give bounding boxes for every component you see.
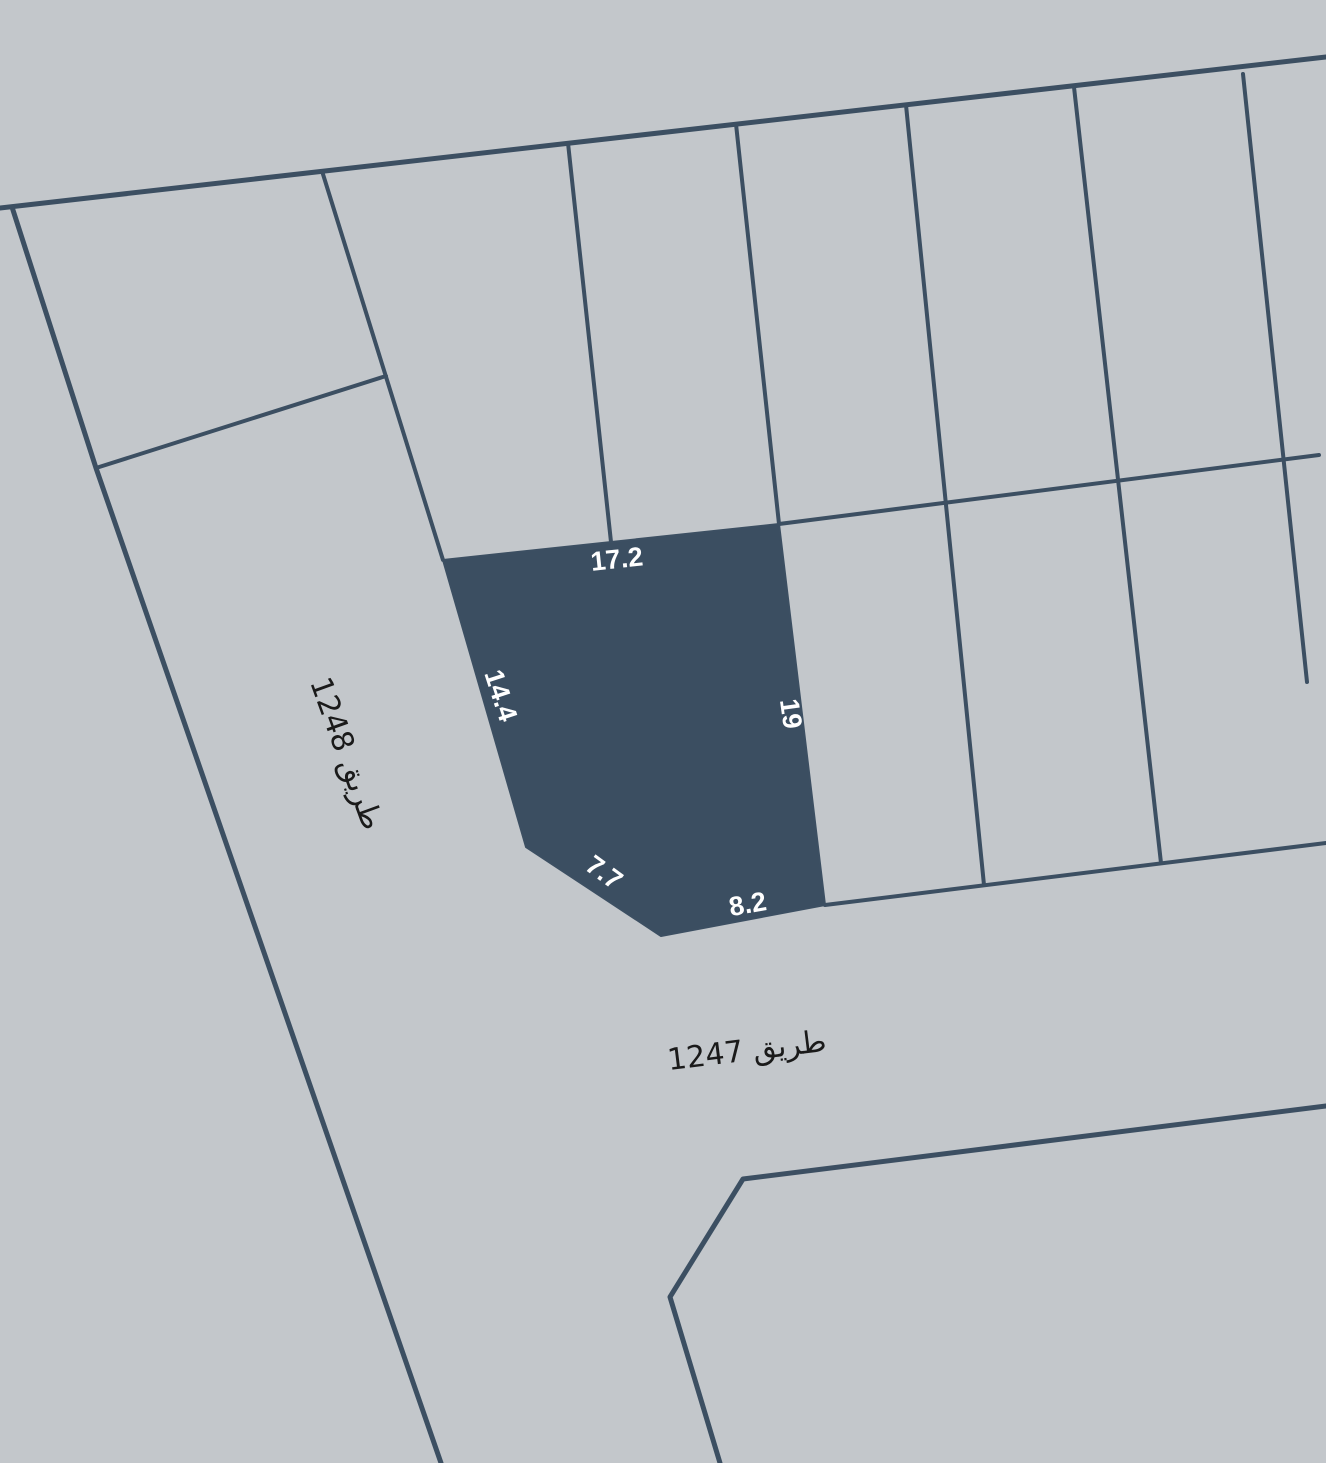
dimension-label-bottom: 8.2 xyxy=(727,886,769,922)
map-canvas[interactable]: 17.2 14.4 19 7.7 8.2 طريق 1248 طريق 1247 xyxy=(0,0,1326,1463)
dimension-label-top: 17.2 xyxy=(589,541,644,576)
parcel-map-svg: 17.2 14.4 19 7.7 8.2 طريق 1248 طريق 1247 xyxy=(0,0,1326,1463)
dimension-label-right: 19 xyxy=(774,697,808,731)
